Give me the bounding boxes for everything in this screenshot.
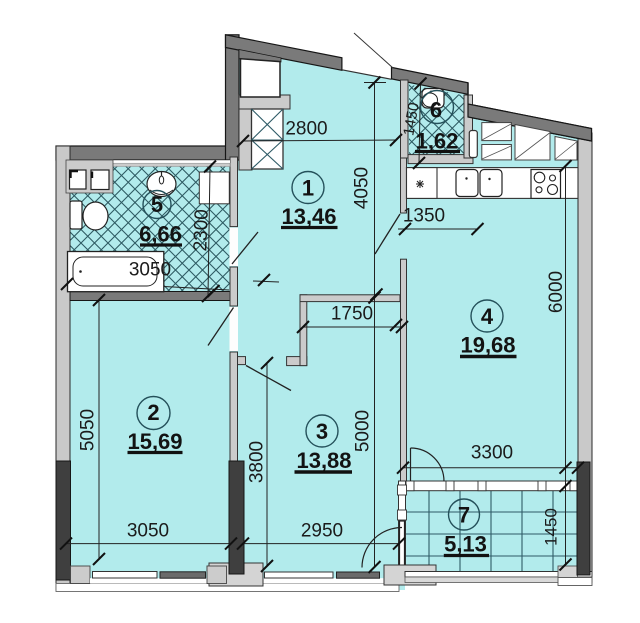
svg-text:13,46: 13,46 xyxy=(281,204,336,229)
svg-text:5000: 5000 xyxy=(353,410,374,452)
svg-text:2800: 2800 xyxy=(285,119,327,140)
svg-text:6,66: 6,66 xyxy=(139,222,182,247)
svg-text:1,62: 1,62 xyxy=(416,129,459,154)
svg-text:2950: 2950 xyxy=(301,521,343,542)
svg-text:5: 5 xyxy=(151,192,163,217)
svg-text:19,68: 19,68 xyxy=(460,333,515,358)
svg-text:3050: 3050 xyxy=(127,521,169,542)
svg-text:5050: 5050 xyxy=(78,409,99,451)
svg-text:13,88: 13,88 xyxy=(296,448,351,473)
svg-text:4: 4 xyxy=(481,304,494,329)
svg-text:3: 3 xyxy=(316,419,328,444)
svg-text:6000: 6000 xyxy=(546,271,567,313)
svg-text:3300: 3300 xyxy=(471,443,513,464)
svg-text:3050: 3050 xyxy=(129,260,171,281)
svg-text:2: 2 xyxy=(147,400,159,425)
svg-text:7: 7 xyxy=(458,503,470,528)
svg-text:1: 1 xyxy=(302,176,314,201)
svg-text:1350: 1350 xyxy=(403,206,445,227)
svg-text:2300: 2300 xyxy=(190,209,212,252)
svg-text:4050: 4050 xyxy=(352,167,373,209)
svg-text:1750: 1750 xyxy=(331,304,373,325)
svg-text:5,13: 5,13 xyxy=(444,532,487,557)
svg-text:15,69: 15,69 xyxy=(127,429,182,454)
svg-text:6: 6 xyxy=(430,98,442,123)
svg-text:1450: 1450 xyxy=(542,508,561,546)
svg-text:3800: 3800 xyxy=(247,441,268,483)
